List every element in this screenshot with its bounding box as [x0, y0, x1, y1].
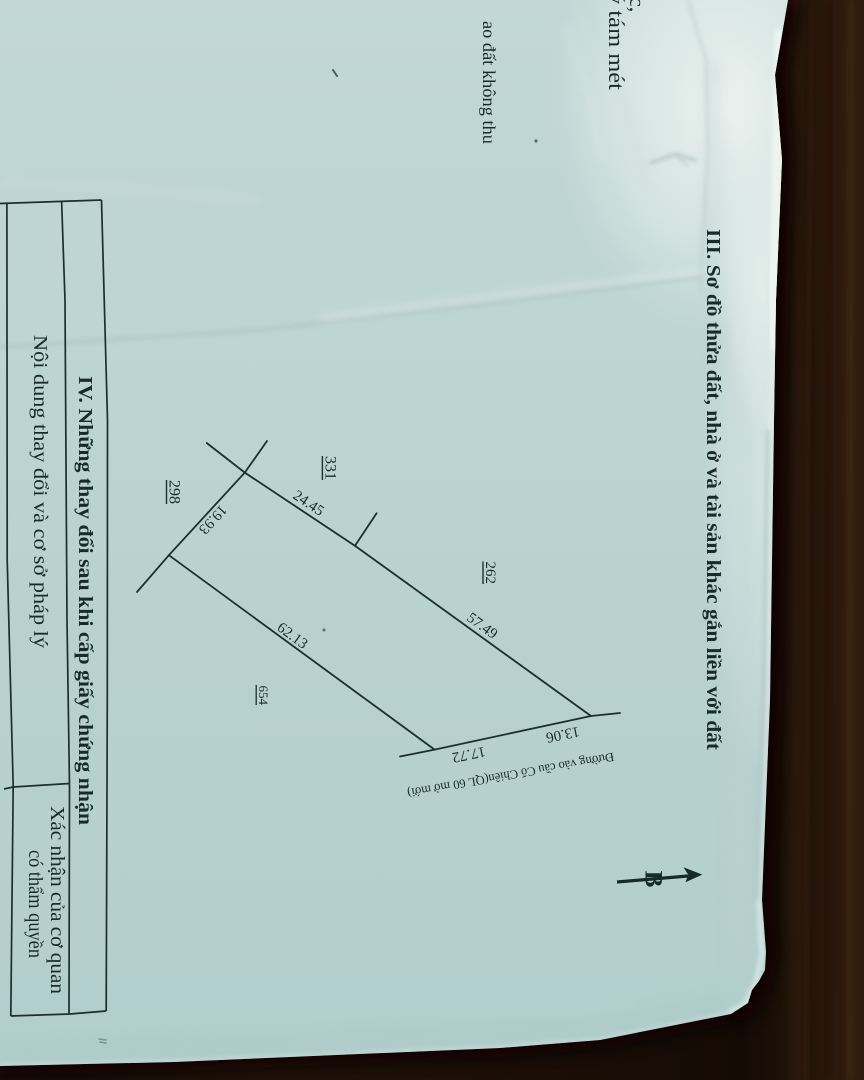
svg-text:654: 654 — [256, 686, 271, 706]
svg-text:262: 262 — [482, 562, 498, 585]
svg-text:IV. Những thay đổi sau khi cấp: IV. Những thay đổi sau khi cấp giấy chứn… — [74, 376, 96, 825]
svg-text:Nội dung thay đổi và cơ sở phá: Nội dung thay đổi và cơ sở pháp lý — [29, 335, 51, 648]
svg-text:III. Sơ đồ thửa đất, nhà ở và: III. Sơ đồ thửa đất, nhà ở và tài sản kh… — [702, 229, 724, 750]
svg-text:331: 331 — [321, 456, 338, 480]
svg-text:ao đất không thu: ao đất không thu — [479, 21, 499, 144]
svg-text:298: 298 — [166, 480, 183, 504]
svg-text:ý tám mét: ý tám mét — [604, 0, 629, 90]
svg-text:Xác nhận của cơ quan: Xác nhận của cơ quan — [46, 806, 67, 994]
svg-text:có thẩm quyền: có thẩm quyền — [24, 850, 45, 958]
svg-text:B: B — [640, 871, 667, 888]
